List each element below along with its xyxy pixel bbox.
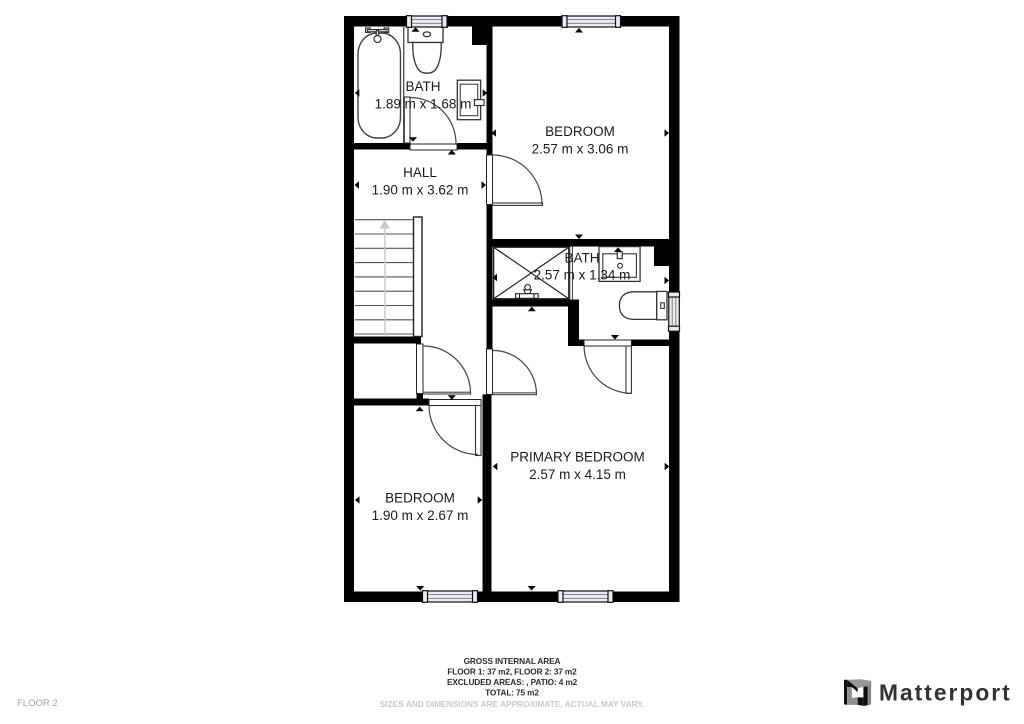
svg-text:1.90 m x 3.62 m: 1.90 m x 3.62 m <box>372 183 469 198</box>
svg-text:EXCLUDED AREAS: , PATIO: 4 m2: EXCLUDED AREAS: , PATIO: 4 m2 <box>447 677 578 687</box>
svg-text:2.57 m x 3.06 m: 2.57 m x 3.06 m <box>532 142 629 157</box>
svg-text:BATH: BATH <box>564 251 599 266</box>
svg-text:2.57 m x 4.15 m: 2.57 m x 4.15 m <box>529 467 626 482</box>
svg-text:BEDROOM: BEDROOM <box>545 124 615 139</box>
svg-text:TOTAL: 75 m2: TOTAL: 75 m2 <box>485 688 539 698</box>
svg-text:Matterport: Matterport <box>879 680 1012 706</box>
svg-text:FLOOR 2: FLOOR 2 <box>17 698 58 709</box>
svg-text:BATH: BATH <box>405 79 440 94</box>
svg-text:1.89 m x 1.68 m: 1.89 m x 1.68 m <box>375 97 472 112</box>
svg-text:FLOOR 1: 37 m2, FLOOR 2: 37 m2: FLOOR 1: 37 m2, FLOOR 2: 37 m2 <box>447 667 577 677</box>
svg-text:HALL: HALL <box>403 165 437 180</box>
svg-text:BEDROOM: BEDROOM <box>385 491 455 506</box>
svg-text:GROSS INTERNAL AREA: GROSS INTERNAL AREA <box>464 656 561 666</box>
svg-text:2.57 m x 1.34 m: 2.57 m x 1.34 m <box>534 268 631 283</box>
svg-text:SIZES AND DIMENSIONS ARE APPRO: SIZES AND DIMENSIONS ARE APPROXIMATE, AC… <box>380 699 644 709</box>
svg-text:PRIMARY BEDROOM: PRIMARY BEDROOM <box>510 450 645 465</box>
svg-text:1.90 m x 2.67 m: 1.90 m x 2.67 m <box>372 508 469 523</box>
